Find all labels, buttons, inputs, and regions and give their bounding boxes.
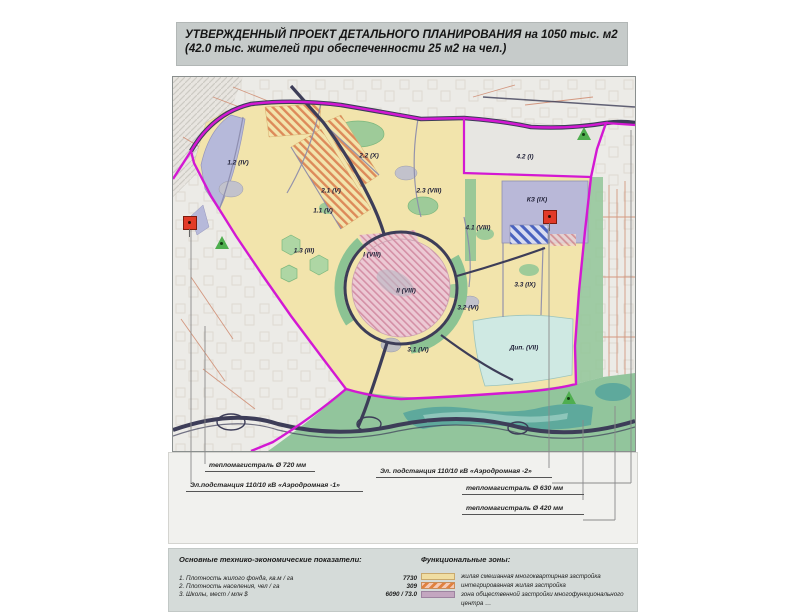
indicators-header: Основные технико-экономические показател… (179, 555, 417, 564)
plan-map: 1.2 (IV)2.2 (X)2.1 (V)1.1 (V)2.3 (VIII)1… (172, 76, 636, 452)
legend-header: Функциональные зоны: (421, 555, 633, 564)
zone-label: Дип. (VII) (510, 345, 539, 352)
zone-label: 1.1 (V) (313, 208, 333, 215)
garage-hatch-icon (510, 225, 548, 244)
slide-title-line2: (42.0 тыс. жителей при обеспеченности 25… (185, 42, 619, 56)
indicator-value: 7730 (403, 575, 417, 583)
annotation-substation-2: Эл. подстанция 110/10 кВ «Аэродромная -2… (376, 467, 552, 478)
legend-row: центра … (421, 599, 633, 608)
green-flag-icon (577, 127, 591, 140)
zone-label: II (VIII) (396, 288, 416, 295)
slide-title-line1: УТВЕРЖДЕННЫЙ ПРОЕКТ ДЕТАЛЬНОГО ПЛАНИРОВА… (185, 28, 619, 42)
indicator-value: 6090 / 73.0 (385, 591, 417, 599)
legend-row: жилая смешанная многоквартирная застройк… (421, 572, 633, 581)
legend-swatch-spacer (421, 600, 455, 607)
slide-page: { "title": { "line1": "УТВЕРЖДЕННЫЙ ПРОЕ… (0, 0, 800, 600)
zone-label: 1.3 (III) (294, 248, 315, 255)
annotation-heatmain-720: тепломагистраль Ø 720 мм (205, 461, 315, 472)
legend-swatch-integrated (421, 582, 455, 589)
legend-block: Функциональные зоны: жилая смешанная мно… (421, 555, 633, 608)
legend-swatch-residential (421, 573, 455, 580)
bottom-panel: Основные технико-экономические показател… (168, 548, 638, 612)
legend-row: интегрированная жилая застройка (421, 581, 633, 590)
annotation-heatmain-630: тепломагистраль Ø 630 мм (462, 484, 584, 495)
indicator-label: 3. Школы, мест / млн $ (179, 591, 248, 599)
zone-label: 4.1 (VIII) (466, 225, 491, 232)
indicator-row: 3. Школы, мест / млн $ 6090 / 73.0 (179, 591, 417, 599)
red-flag-icon (543, 210, 557, 224)
indicator-label: 2. Плотность населения, чел / га (179, 583, 279, 591)
legend-row: зона общественной застройки многофункцио… (421, 590, 633, 599)
indicator-label: 1. Плотность жилого фонда, кв.м / га (179, 575, 293, 583)
legend-swatch-public (421, 591, 455, 598)
green-flag-icon (562, 391, 576, 404)
indicator-row: 2. Плотность населения, чел / га 309 (179, 583, 417, 591)
zone-label: 3.3 (IX) (514, 282, 535, 289)
red-flag-icon (183, 216, 197, 230)
zone-label: 3.1 (VI) (407, 347, 428, 354)
zone-label: 2.3 (VIII) (417, 188, 442, 195)
annotation-heatmain-420: тепломагистраль Ø 420 мм (462, 504, 584, 515)
indicator-value: 309 (406, 583, 417, 591)
zone-label: КЗ (IX) (527, 197, 547, 204)
zone-label: I (VIII) (363, 252, 381, 259)
zone-label: 4.2 (I) (517, 154, 534, 161)
slide-title-box: УТВЕРЖДЕННЫЙ ПРОЕКТ ДЕТАЛЬНОГО ПЛАНИРОВА… (176, 22, 628, 66)
zone-label: 2.1 (V) (321, 188, 341, 195)
annotation-substation-1: Эл.подстанция 110/10 кВ «Аэродромная -1» (186, 481, 363, 492)
zone-label: 3.2 (VI) (457, 305, 478, 312)
indicators-block: Основные технико-экономические показател… (179, 555, 417, 599)
zone-label: 1.2 (IV) (227, 160, 248, 167)
indicator-row: 1. Плотность жилого фонда, кв.м / га 773… (179, 575, 417, 583)
zone-label: 2.2 (X) (359, 153, 379, 160)
green-flag-icon (215, 236, 229, 249)
